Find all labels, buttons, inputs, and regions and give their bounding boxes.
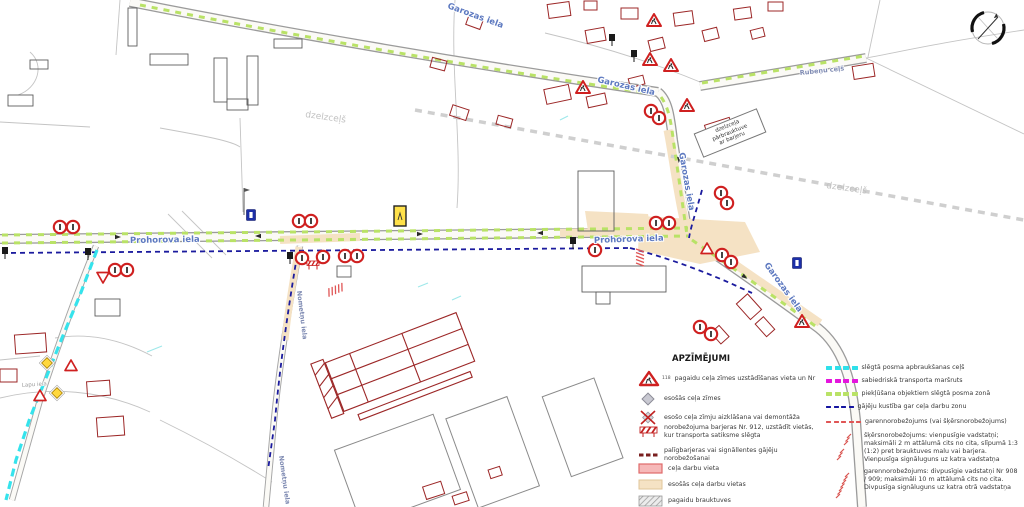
legend-item: šķērsnorobežojums: vienpusīgie vadstatņi… [826,432,1018,463]
legend-item: norobežojuma barjeras Nr. 912, uzstādīt … [638,424,824,440]
map-sign-noentry [339,250,351,262]
map-sign-barrier [307,261,319,270]
map-sign-noentry [293,215,305,227]
legend-label: garennorobežojums: divpusīgie vadstatņi … [864,468,1018,492]
map-sign-worktri [647,14,661,26]
legend-label: šķērsnorobežojums: vienpusīgie vadstatņi… [864,432,1018,463]
legend-label: ceļa darbu vieta [668,465,719,473]
compass-north-arrow-icon [972,12,1004,44]
access-green-swatch [826,392,858,397]
legend-label: palīgbarjeras vai signāllentes gājēju no… [664,447,824,463]
map-sign-plaintri [65,360,77,371]
map-sign-blacksign [631,50,637,62]
street-label-prohorova-w: Prohorova iela [130,235,200,246]
buildings-parallelogram-layer [334,378,623,507]
map-sign-worktri [680,99,694,111]
railway-label-west: dzelzceļš [305,109,347,126]
transport-magenta-swatch [826,379,858,384]
map-sign-noentry [121,264,133,276]
legend-item: garennorobežojums: divpusīgie vadstatņi … [826,468,1018,500]
map-sign-noentry [663,217,675,229]
legend-label: norobežojuma barjeras Nr. 912, uzstādīt … [664,424,824,440]
legend-item: sabiedriskā transporta maršruts [826,377,1018,385]
long-barrier-posts-icon [826,468,860,500]
legend-label: piekļūšana objektiem slēgtā posma zonā [862,390,991,398]
legend-label: pagaidu ceļa zīmes uzstādīšanas vieta un… [675,375,816,383]
barrier-red-dash-swatch [826,421,861,423]
map-sign-blacksign [570,237,576,249]
pink-area-swatch [638,463,664,474]
legend-label: pagaidu brauktuves [668,497,731,505]
map-sign-blacksign [609,34,615,46]
legend-item: garennorobežojums (vai šķērsnorobežojums… [826,418,1018,426]
map-sign-noentry [721,197,733,209]
legend-item: palīgbarjeras vai signāllentes gājēju no… [638,447,824,463]
street-label-nometnu-s: Nometņu iela [277,455,292,505]
legend-item: gājēju kustība gar ceļa darbu zonu [826,403,1018,411]
legend-label: esošās ceļa zīmes [664,395,721,403]
legend-item: esošo ceļa zīmju aizklāšana vai demontāž… [638,410,824,425]
map-sign-bluesq [793,258,802,269]
worktri-icon: 118 [638,370,671,387]
legend-item: ceļa darbu vieta [638,463,824,474]
buildings-gray-layer [8,8,666,316]
street-label-garozas-nw: Garozas iela [446,1,505,31]
map-sign-noentry [109,264,121,276]
map-sign-noentry [650,217,662,229]
map-sign-redhatch [326,283,345,297]
map-sign-noentry [305,215,317,227]
legend-label: garennorobežojums (vai šķērsnorobežojums… [865,418,1007,426]
tan-area-swatch [638,479,664,490]
legend-sign-number: 118 [662,376,671,381]
legend-item: 118 pagaidu ceļa zīmes uzstādīšanas viet… [638,370,824,387]
legend: APZĪMĒJUMI 118 pagaidu ceļa zīmes uzstād… [630,352,1022,507]
legend-item: esošās ceļa zīmes [638,392,824,406]
map-sign-noentry [54,221,66,233]
railway-label-east: dzelzceļš [826,180,868,197]
map-sign-blacksign [2,247,8,259]
legend-label: slēgtā posma apbraukšanas ceļš [862,364,965,372]
barrier-icon [638,424,660,439]
map-sign-yieldtri [97,273,109,284]
map-sign-yellowdiamond [49,385,65,401]
map-sign-noentry [653,112,665,124]
crossed-sign-icon [638,410,660,425]
map-sign-worktri [664,59,678,71]
map-sign-worktri [643,53,657,65]
cross-barrier-posts-icon [826,432,860,462]
map-sign-noentry [67,221,79,233]
legend-item: esošās ceļa darbu vietas [638,479,824,490]
map-sign-yellowrect [394,206,406,226]
map-sign-noentry [317,251,329,263]
detour-cyan-swatch [826,366,858,371]
legend-item: slēgtā posma apbraukšanas ceļš [826,364,1018,372]
map-sign-bluesq [247,210,256,221]
gray-diamond-icon [638,392,660,406]
industrial-building [311,309,480,430]
legend-label: sabiedriskā transporta maršruts [862,377,963,385]
map-sign-blacksign [287,252,293,264]
map-sign-noentry [351,250,363,262]
legend-label: gājēju kustība gar ceļa darbu zonu [858,403,967,411]
legend-item: pagaidu brauktuves [638,495,824,507]
street-label-nometnu-n: Nometņu iela [295,290,309,340]
legend-item: piekļūšana objektiem slēgtā posma zonā [826,390,1018,398]
map-sign-noentry [725,256,737,268]
hatch-area-swatch [638,495,664,507]
legend-label: esošo ceļa zīmju aizklāšana vai demontāž… [664,414,800,422]
pedestrian-navy-swatch [826,406,854,408]
legend-title: APZĪMĒJUMI [672,354,730,364]
legend-label: esošās ceļa darbu vietas [668,481,746,489]
map-sign-noentry [705,328,717,340]
traffic-management-plan: Prohorova iela Prohorova iela Garozas ie… [0,0,1024,507]
mini-dashes-icon [638,451,660,459]
map-sign-noentry [296,252,308,264]
